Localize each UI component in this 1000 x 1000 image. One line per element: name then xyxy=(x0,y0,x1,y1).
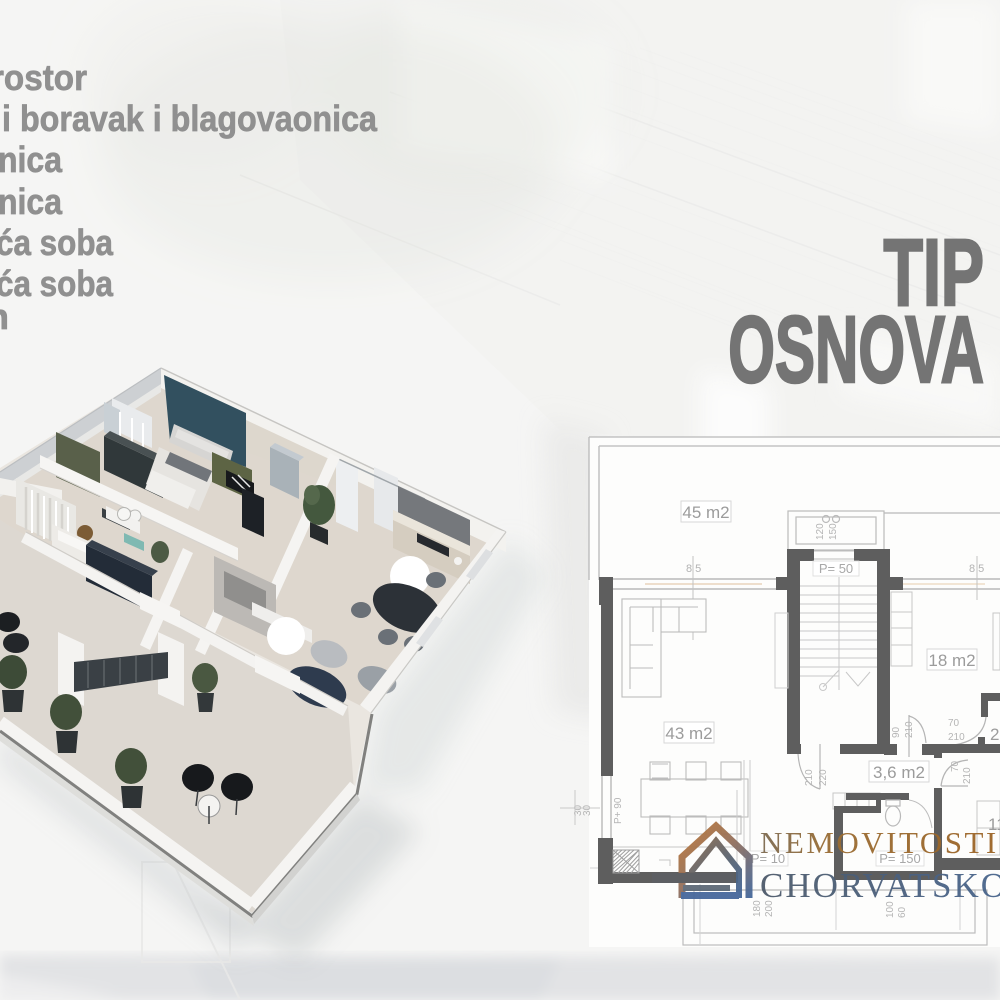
svg-text:8 5: 8 5 xyxy=(686,563,701,575)
svg-text:ća soba: ća soba xyxy=(0,263,114,304)
svg-text:210: 210 xyxy=(962,767,973,784)
svg-text:3,6 m2: 3,6 m2 xyxy=(873,763,925,782)
svg-text:P= 50: P= 50 xyxy=(819,561,853,576)
svg-text:210: 210 xyxy=(804,769,815,786)
svg-text:8 5: 8 5 xyxy=(969,563,984,575)
svg-text:70: 70 xyxy=(950,760,961,772)
svg-text:OSNOVA: OSNOVA xyxy=(728,296,984,402)
svg-text:60: 60 xyxy=(897,906,908,918)
svg-text:90: 90 xyxy=(891,726,902,738)
svg-text:nica: nica xyxy=(0,181,63,222)
svg-text:P+ 90: P+ 90 xyxy=(613,797,624,824)
svg-text:rostor: rostor xyxy=(0,57,87,98)
svg-text:i boravak i blagovaonica: i boravak i blagovaonica xyxy=(2,98,378,139)
svg-text:ća soba: ća soba xyxy=(0,222,114,263)
svg-text:150: 150 xyxy=(828,523,839,540)
svg-text:CHORVATSKO: CHORVATSKO xyxy=(760,866,1000,905)
svg-text:nica: nica xyxy=(0,139,63,180)
svg-text:70: 70 xyxy=(948,718,960,729)
svg-text:43 m2: 43 m2 xyxy=(665,724,712,743)
svg-text:210: 210 xyxy=(904,721,915,738)
svg-text:NEMOVITOSTI: NEMOVITOSTI xyxy=(760,825,999,860)
svg-text:2,: 2, xyxy=(990,725,1000,744)
svg-text:220: 220 xyxy=(818,769,829,786)
svg-text:n: n xyxy=(0,296,9,337)
svg-text:210: 210 xyxy=(948,732,965,743)
svg-text:45 m2: 45 m2 xyxy=(682,503,729,522)
svg-text:18 m2: 18 m2 xyxy=(928,651,975,670)
svg-text:120: 120 xyxy=(815,523,826,540)
svg-text:30: 30 xyxy=(582,804,593,816)
